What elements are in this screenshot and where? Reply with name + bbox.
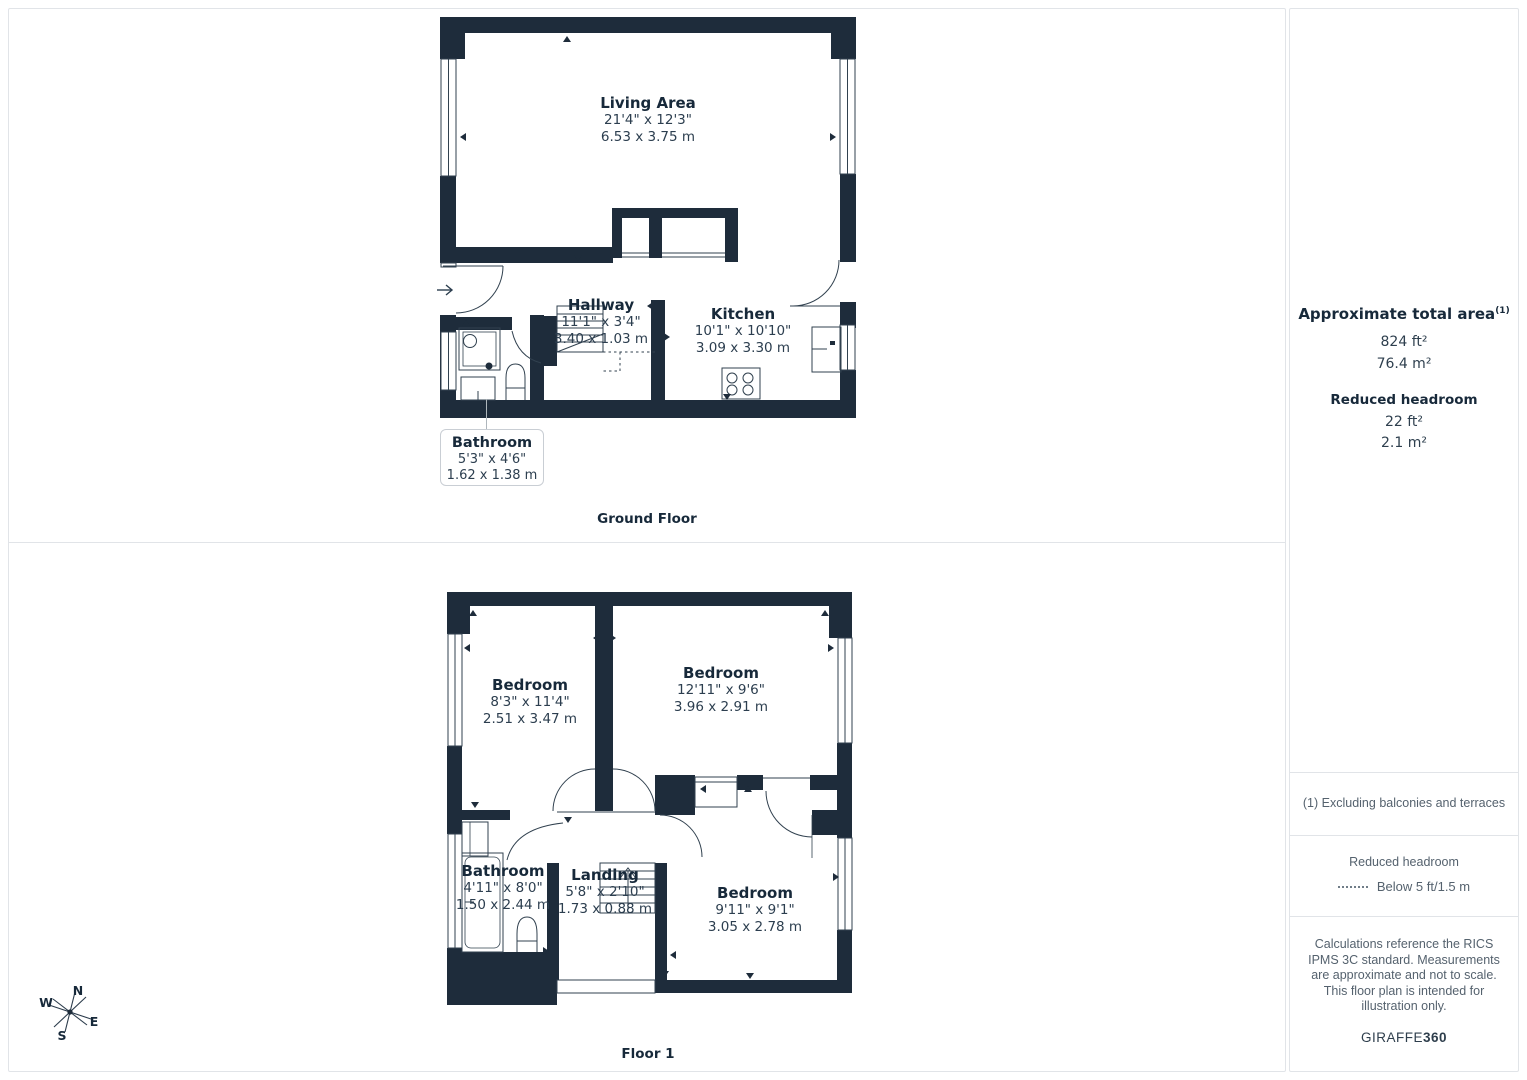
room-label-bedroom-3: Bedroom 9'11" x 9'1" 3.05 x 2.78 m xyxy=(708,884,802,936)
room-label-hallway: Hallway 11'1" x 3'4" 3.40 x 1.03 m xyxy=(554,296,648,348)
brand-suffix: 360 xyxy=(1423,1030,1447,1045)
room-label-living-area: Living Area 21'4" x 12'3" 6.53 x 3.75 m xyxy=(600,94,696,146)
floor1-title: Floor 1 xyxy=(621,1046,674,1062)
ground-floor-title: Ground Floor xyxy=(597,511,697,527)
room-label-landing: Landing 5'8" x 2'10" 1.73 x 0.88 m xyxy=(558,866,652,918)
legend-row: Below 5 ft/1.5 m xyxy=(1290,879,1518,894)
floor-divider-line xyxy=(9,542,1285,543)
room-label-bathroom-f1: Bathroom 4'11" x 8'0" 1.50 x 2.44 m xyxy=(456,862,550,914)
dotted-line-icon xyxy=(1338,886,1368,888)
giraffe360-logo: GIRAFFE360 xyxy=(1290,1030,1518,1045)
total-area-title-text: Approximate total area xyxy=(1298,305,1495,323)
sidebar-divider-2 xyxy=(1290,835,1518,836)
floorplan-page: Approximate total area(1) 824 ft² 76.4 m… xyxy=(0,0,1527,1080)
room-label-bedroom-1: Bedroom 8'3" x 11'4" 2.51 x 3.47 m xyxy=(483,676,577,728)
legend-label: Below 5 ft/1.5 m xyxy=(1377,879,1470,894)
total-area-title: Approximate total area(1) xyxy=(1290,305,1518,323)
room-label-kitchen: Kitchen 10'1" x 10'10" 3.09 x 3.30 m xyxy=(695,305,792,357)
reduced-headroom-imperial: 22 ft² xyxy=(1290,414,1518,430)
room-label-bathroom-callout: Bathroom 5'3" x 4'6" 1.62 x 1.38 m xyxy=(440,429,544,486)
total-area-metric: 76.4 m² xyxy=(1290,356,1518,372)
legend-title: Reduced headroom xyxy=(1290,855,1518,869)
callout-leader-line xyxy=(486,399,487,430)
disclaimer-block: Calculations reference the RICS IPMS 3C … xyxy=(1290,937,1518,1015)
sidebar-divider-3 xyxy=(1290,916,1518,917)
reduced-headroom-title: Reduced headroom xyxy=(1290,392,1518,408)
area-footnote: (1) Excluding balconies and terraces xyxy=(1290,796,1518,810)
disclaimer-text: Calculations reference the RICS IPMS 3C … xyxy=(1305,937,1503,1015)
info-sidebar: Approximate total area(1) 824 ft² 76.4 m… xyxy=(1289,8,1519,1072)
reduced-headroom-metric: 2.1 m² xyxy=(1290,435,1518,451)
footnote-marker: (1) xyxy=(1495,306,1510,316)
total-area-imperial: 824 ft² xyxy=(1290,334,1518,350)
sidebar-divider-1 xyxy=(1290,772,1518,773)
room-label-bedroom-2: Bedroom 12'11" x 9'6" 3.96 x 2.91 m xyxy=(674,664,768,716)
brand-name: GIRAFFE xyxy=(1361,1030,1423,1045)
